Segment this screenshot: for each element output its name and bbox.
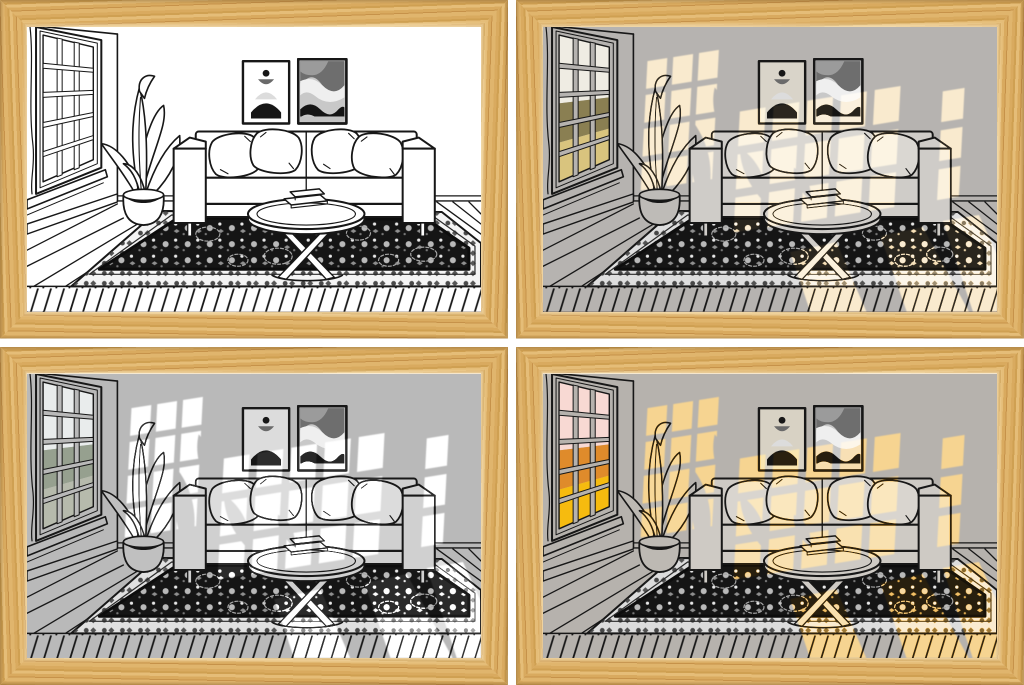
frame-edge-top [516,347,1024,374]
light-beam-overlay [543,374,997,659]
frame-edge-bottom [516,658,1024,685]
artwork-canvas [27,374,481,659]
framed-light-painting-bottom-left [0,347,508,685]
framed-light-painting-bottom-right [516,347,1024,685]
frame-edge-bottom [516,312,1024,339]
product-collage-grid [0,0,1024,685]
frame-edge-top [516,0,1024,27]
frame-edge-left [516,0,543,339]
artwork-canvas [27,27,481,312]
artwork-canvas [543,27,997,312]
frame-edge-left [0,347,27,685]
frame-edge-left [0,0,27,339]
frame-edge-bottom [0,658,508,685]
frame-edge-right [997,0,1024,339]
frame-edge-right [997,347,1024,685]
frame-edge-top [0,347,508,374]
frame-edge-right [481,347,508,685]
light-beam-overlay [27,374,481,659]
light-beam-overlay [543,27,997,312]
framed-light-painting-top-left [0,0,508,339]
frame-edge-left [516,347,543,685]
frame-edge-right [481,0,508,339]
artwork-canvas [543,374,997,659]
framed-light-painting-top-right [516,0,1024,339]
frame-edge-bottom [0,312,508,339]
frame-edge-top [0,0,508,27]
